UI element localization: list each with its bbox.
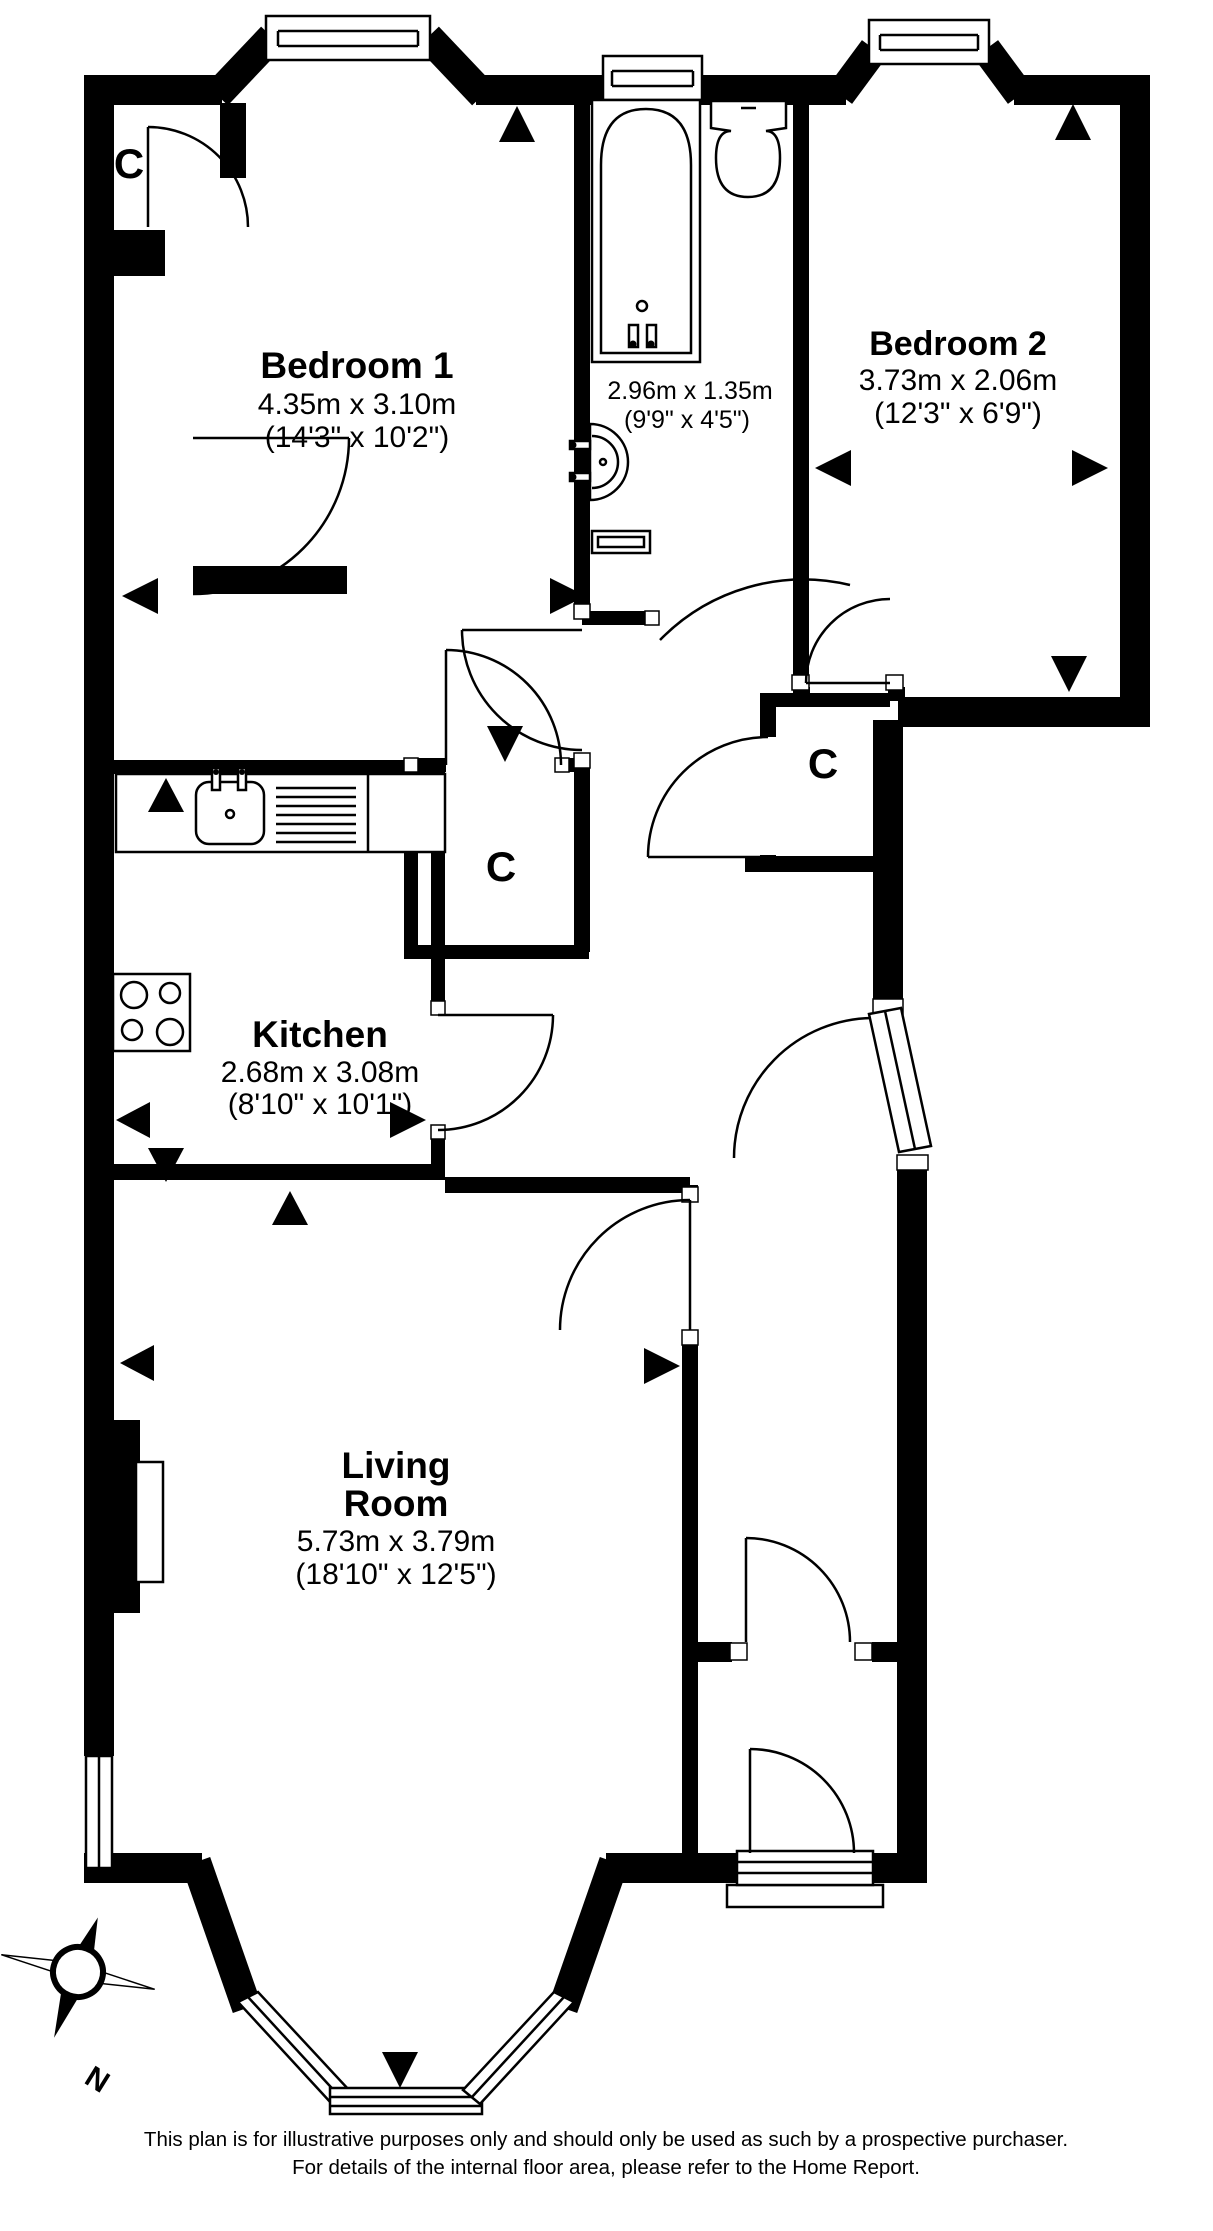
bathroom-window-icon (603, 56, 702, 100)
measurement-arrow-icon (487, 726, 523, 762)
living-room-imperial: (18'10" x 12'5") (295, 1558, 496, 1591)
right-closet-door (648, 737, 768, 857)
measurement-arrow-icon (272, 1191, 308, 1225)
measurement-arrow-icon (120, 1345, 154, 1381)
bedroom2-door (806, 599, 890, 683)
bathroom-door (660, 579, 850, 640)
bedroom2-imperial: (12'3" x 6'9") (874, 397, 1042, 430)
bathroom-metric: 2.96m x 1.35m (607, 377, 772, 405)
kitchen-imperial: (8'10" x 10'1") (228, 1088, 413, 1121)
bedroom2-metric: 3.73m x 2.06m (859, 364, 1057, 397)
closet-label-right: C (808, 740, 838, 787)
bedroom1-label: Bedroom 1 (260, 345, 453, 386)
measurement-arrow-icon (1051, 656, 1087, 692)
disclaimer-line1: This plan is for illustrative purposes o… (144, 2128, 1068, 2151)
measurement-arrow-icon (815, 450, 851, 486)
measurement-arrow-icon (1072, 450, 1108, 486)
vestibule-window-icon (727, 1851, 883, 1907)
fireplace-icon (136, 1462, 163, 1582)
bedroom1-window-icon (266, 16, 430, 60)
measurement-arrow-icon (116, 1102, 150, 1138)
measurement-arrow-icon (499, 106, 535, 142)
compass-north-label: N (79, 2060, 115, 2099)
bedroom2-window-icon (869, 20, 989, 64)
living-room-label-line2: Room (344, 1483, 449, 1524)
measurement-arrow-icon (122, 578, 158, 614)
toilet-icon (711, 101, 786, 197)
living-room-label-line1: Living (342, 1445, 451, 1486)
measurement-arrow-icon (1055, 104, 1091, 140)
kitchen-metric: 2.68m x 3.08m (221, 1056, 419, 1089)
vestibule-door-upper (746, 1538, 850, 1642)
interior-walls (84, 90, 912, 1860)
bedroom1-metric: 4.35m x 3.10m (258, 388, 456, 421)
floorplan-page: Bedroom 1 4.35m x 3.10m (14'3" x 10'2") … (0, 0, 1213, 2231)
closet-label-bedroom1: C (114, 140, 144, 187)
bathroom-radiator-icon (592, 531, 650, 553)
measurement-arrow-icon (382, 2052, 418, 2088)
floorplan-drawing: Bedroom 1 4.35m x 3.10m (14'3" x 10'2") … (0, 0, 1213, 2231)
disclaimer: This plan is for illustrative purposes o… (144, 2128, 1068, 2179)
disclaimer-line2: For details of the internal floor area, … (292, 2156, 920, 2179)
measurement-arrow-icon (644, 1348, 680, 1384)
closet-label-centre: C (486, 843, 516, 890)
kitchen-label: Kitchen (252, 1014, 388, 1055)
entrance-door (734, 1008, 931, 1158)
bedroom1-imperial: (14'3" x 10'2") (265, 421, 450, 454)
compass-rose-icon (0, 1891, 171, 2065)
kitchen-door (438, 1015, 553, 1130)
door-jambs (404, 604, 928, 1660)
living-room-side-window-icon (86, 1756, 112, 1868)
bathtub-icon (592, 100, 700, 362)
bathroom-imperial: (9'9" x 4'5") (624, 406, 750, 434)
vestibule-door-lower (750, 1749, 854, 1853)
bedroom1-door (462, 630, 582, 750)
living-room-door (560, 1200, 690, 1330)
bedroom2-label: Bedroom 2 (869, 325, 1047, 363)
living-room-metric: 5.73m x 3.79m (297, 1525, 495, 1558)
hob-icon (113, 974, 190, 1051)
